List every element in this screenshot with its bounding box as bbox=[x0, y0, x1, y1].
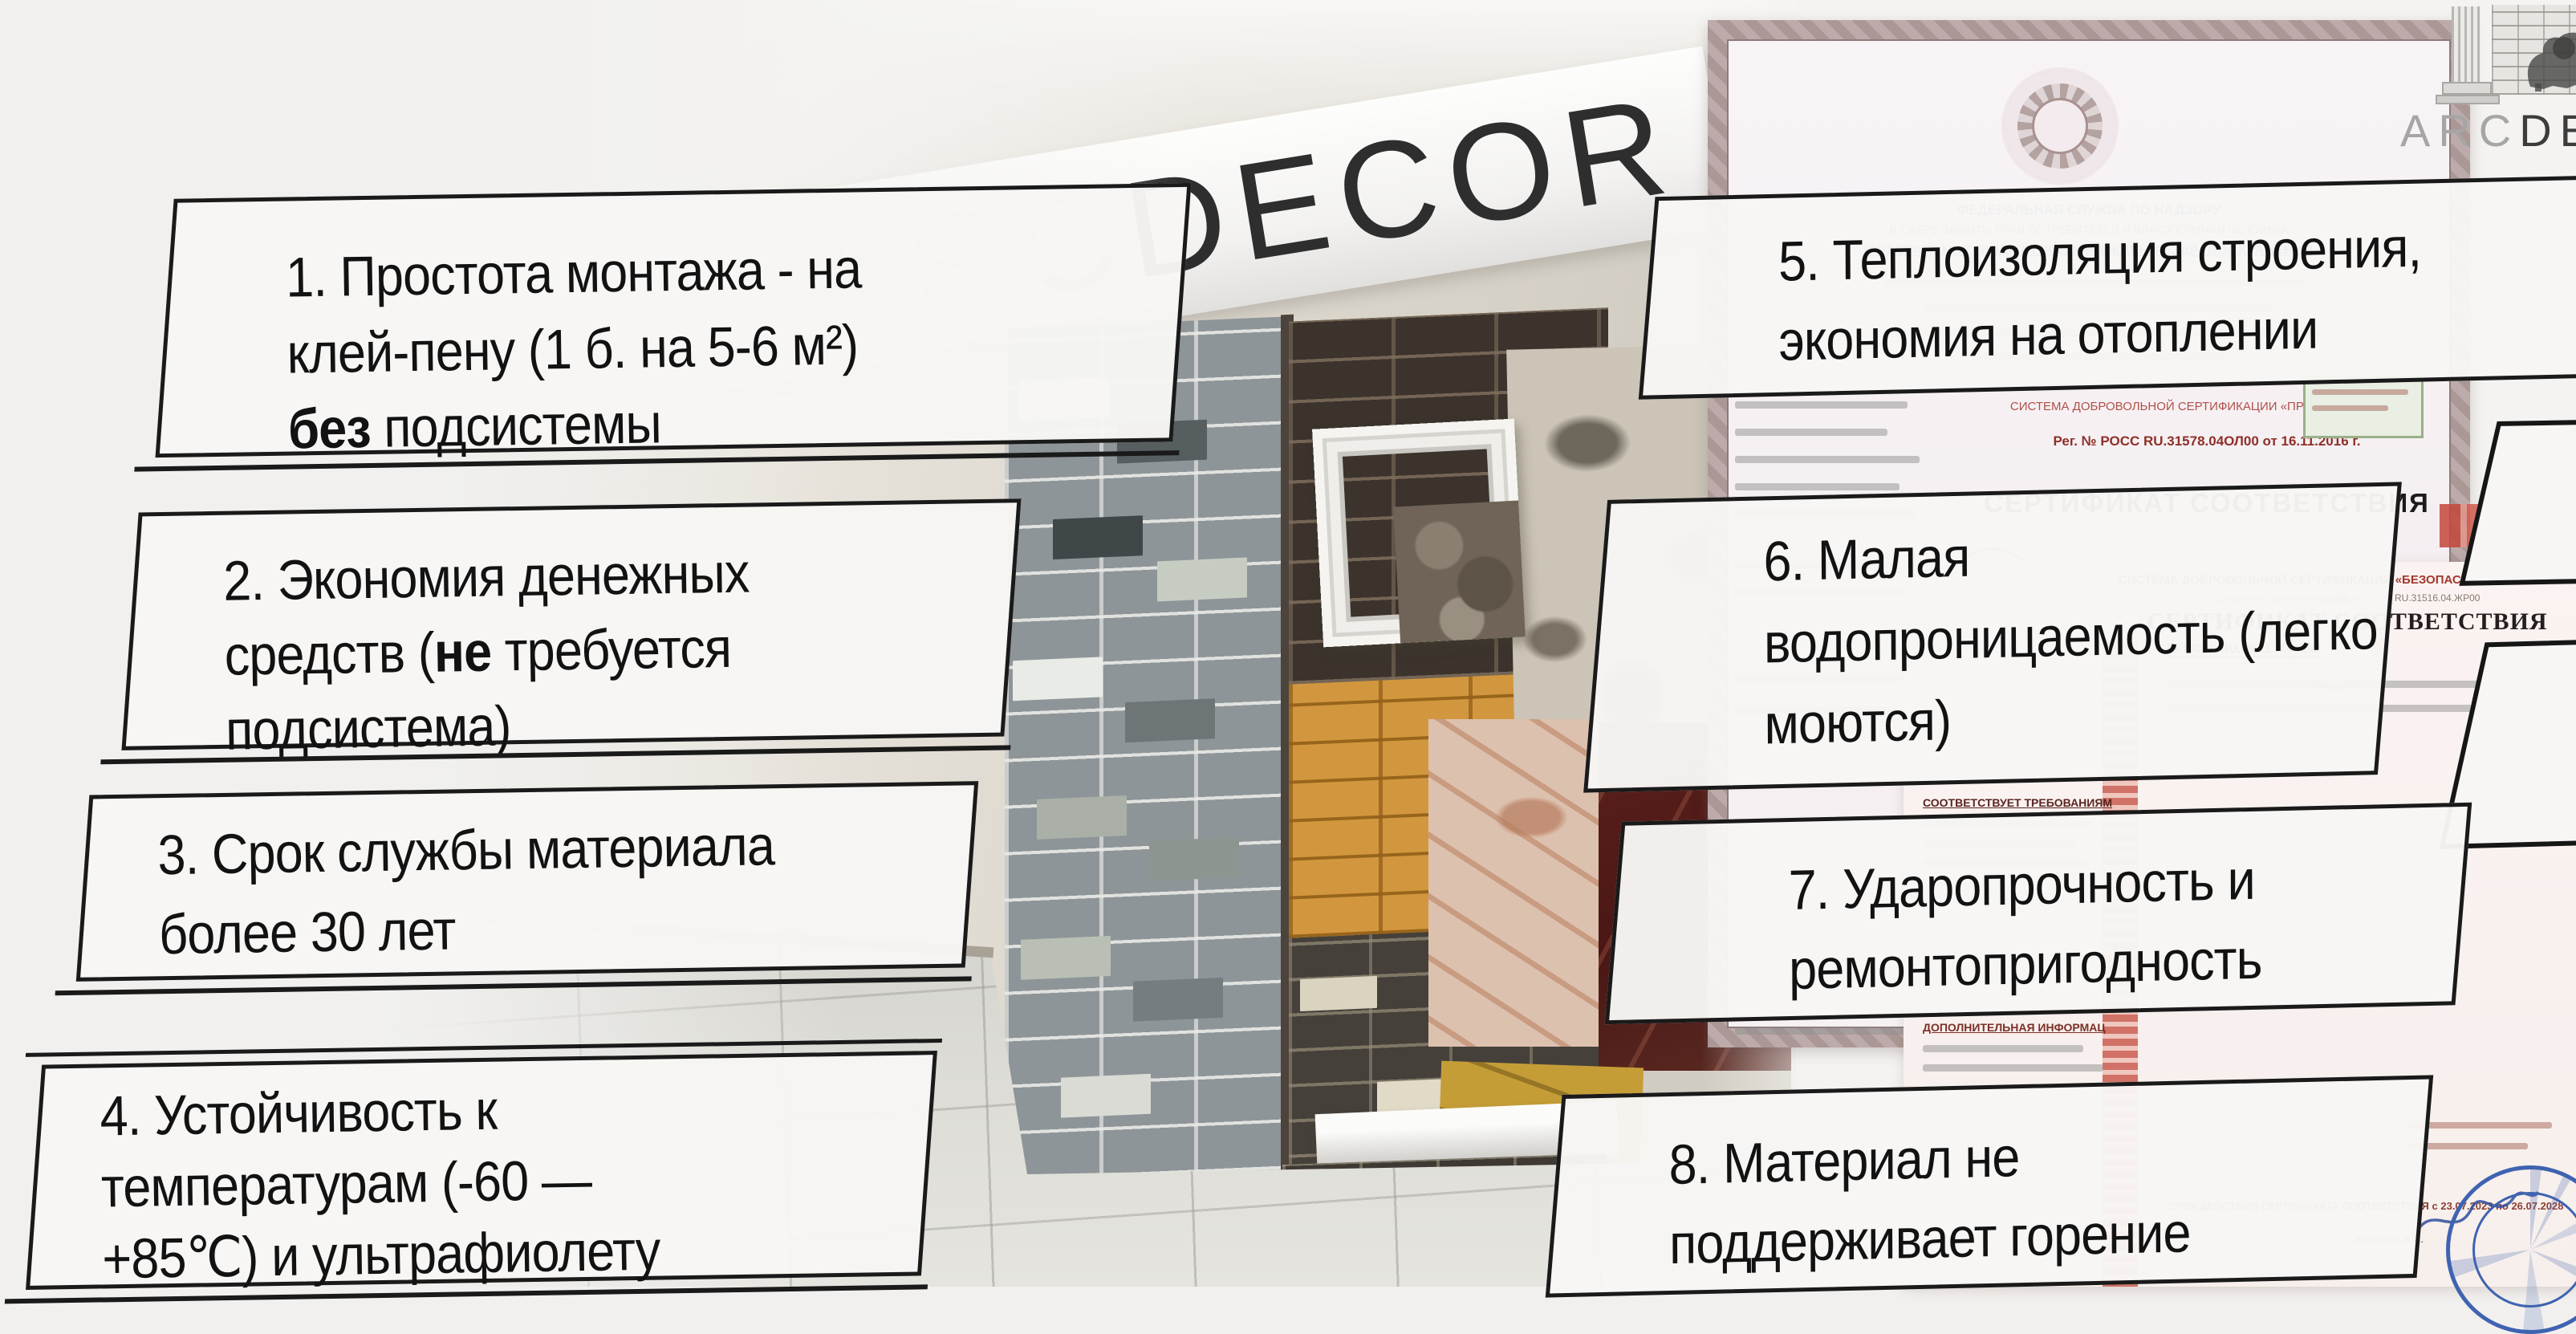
marble-sample-pink bbox=[1428, 719, 1600, 1047]
benefit-text-4: 4. Устойчивость ктемпературам (-60 —+85℃… bbox=[100, 1069, 829, 1295]
benefit-box-8: 8. Материал неподдерживает горение bbox=[1546, 1075, 2433, 1297]
brick-sample bbox=[1157, 557, 1247, 601]
rosette-core bbox=[2032, 98, 2088, 154]
benefit-text-3: 3. Срок службы материалаболее 30 лет bbox=[157, 804, 873, 975]
brick-sample bbox=[1021, 936, 1111, 980]
benefit-text-6: 6. Малаяводопроницаемость (легкомоются) bbox=[1763, 509, 2310, 766]
benefit-text-8: 8. Материал неподдерживает горение bbox=[1668, 1110, 2330, 1285]
blurred-text-line bbox=[1735, 456, 1920, 463]
blurred-text-line bbox=[1735, 483, 1899, 490]
cert-requirements-label: СООТВЕТСТВУЕТ ТРЕБОВАНИЯМ bbox=[1923, 796, 2112, 809]
brick-sample bbox=[1013, 657, 1103, 701]
benefit-text-1: 1. Простота монтажа - наклей-пену (1 б. … bbox=[285, 227, 1075, 467]
brick-sample bbox=[1037, 795, 1127, 840]
blurred-text-line bbox=[1735, 429, 1887, 436]
blurred-text-line bbox=[1735, 401, 1908, 409]
arcdecor-logo: ARCDECOR bbox=[2371, 5, 2576, 157]
blue-stamp-inner-ring bbox=[2472, 1192, 2576, 1308]
benefit-box-3: 3. Срок службы материалаболее 30 лет bbox=[76, 781, 979, 982]
benefit-box-1: 1. Простота монтажа - наклей-пену (1 б. … bbox=[156, 183, 1192, 458]
cert-additional-label: ДОПОЛНИТЕЛЬНАЯ ИНФОРМАЦ bbox=[1923, 1021, 2106, 1034]
logo-decor-text: DECOR bbox=[2519, 105, 2576, 156]
brick-sample bbox=[1125, 698, 1215, 742]
benefit-box-5: 5. Теплоизоляция строения,экономия на от… bbox=[1639, 175, 2576, 400]
benefit-box-6: 6. Малаяводопроницаемость (легкомоются) bbox=[1583, 482, 2402, 792]
benefit-text-2: 2. Экономия денежныхсредств (не требуетс… bbox=[223, 533, 916, 768]
blurred-text-line bbox=[1923, 1045, 2083, 1052]
cornice-molding-sample bbox=[1312, 419, 1526, 648]
logo-arc-text: ARC bbox=[2400, 105, 2519, 156]
benefit-text-5: 5. Теплоизоляция строения,экономия на от… bbox=[1778, 205, 2501, 381]
benefit-box-2: 2. Экономия денежныхсредств (не требуетс… bbox=[121, 498, 1021, 750]
logo-column-icon bbox=[2452, 6, 2481, 82]
cornice-opening bbox=[1393, 500, 1526, 643]
brick-sample bbox=[1061, 1074, 1151, 1118]
brick-sample bbox=[1053, 515, 1143, 559]
logo-column-base bbox=[2442, 82, 2492, 95]
logo-lion-icon bbox=[2508, 16, 2576, 93]
logo-column-plinth bbox=[2436, 95, 2500, 104]
slide-root: { "logo": { "arc": "ARC", "decor": "DECO… bbox=[0, 0, 2576, 1287]
blurred-text-line bbox=[1923, 1064, 2103, 1072]
brick-sample bbox=[1133, 978, 1223, 1022]
blurred-text-line bbox=[2312, 405, 2388, 411]
brick-sample bbox=[1300, 976, 1377, 1011]
certificate-table-cell bbox=[2303, 376, 2424, 438]
brick-sample bbox=[1149, 837, 1239, 881]
logo-wordmark: ARCDECOR bbox=[2400, 104, 2576, 157]
certificate-rosette-seal bbox=[2005, 71, 2115, 181]
benefit-box-4: 4. Устойчивость ктемпературам (-60 —+85℃… bbox=[26, 1051, 937, 1290]
blurred-text-line bbox=[2312, 389, 2408, 395]
benefit-text-7: 7. Ударопрочность иремонтопригодность bbox=[1788, 837, 2377, 1010]
benefit-box-7: 7. Ударопрочность иремонтопригодность bbox=[1605, 803, 2472, 1025]
